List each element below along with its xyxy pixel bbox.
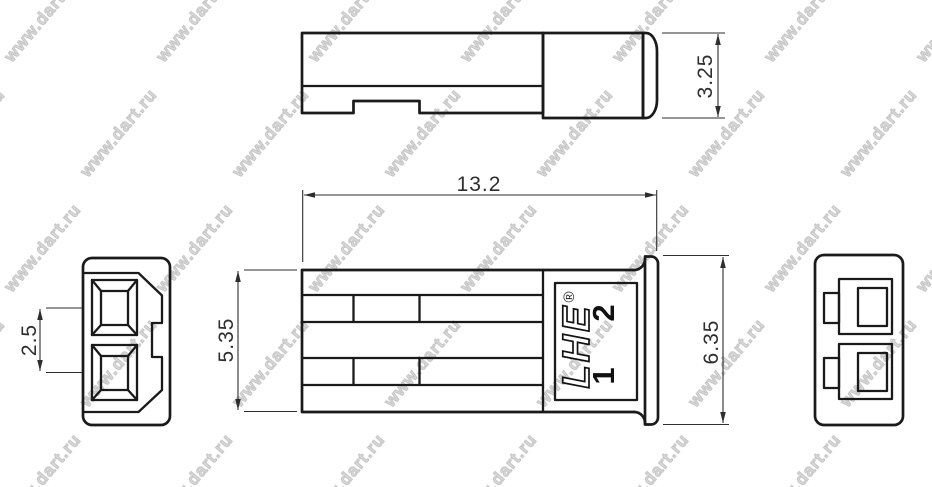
dimension-pin-pitch: 2.5 (18, 308, 82, 373)
front-view-bottom-fillet (634, 412, 645, 423)
right-side-view (815, 255, 903, 425)
right-view-cavity-upper (824, 279, 892, 334)
top-view-flange (643, 33, 657, 118)
dim-label-flange-height: 6.35 (700, 320, 723, 365)
pin-number-2: 2 (586, 304, 621, 321)
dim-label-pin-pitch: 2.5 (18, 324, 41, 356)
front-view: ® LHE 2 1 (302, 257, 658, 425)
registered-trademark-symbol: ® (561, 291, 578, 302)
dimension-flange-height: 6.35 (663, 256, 729, 425)
left-side-view (83, 258, 170, 425)
dimension-overall-length: 13.2 (303, 173, 657, 262)
connector-drawing: 3.25 ® (0, 0, 932, 487)
dim-label-overall-length: 13.2 (457, 173, 502, 196)
top-view (302, 33, 657, 118)
dim-label-body-height: 5.35 (215, 318, 238, 363)
front-view-flange (645, 257, 658, 425)
front-view-stripe-pattern (302, 295, 543, 385)
top-view-front-section (543, 33, 643, 118)
top-view-body-outline (302, 33, 543, 113)
right-view-cavity-lower (824, 344, 892, 399)
technical-drawing-page: www.dart.ruwww.dart.ruwww.dart.ruwww.dar… (0, 0, 932, 487)
dimension-top-view-height: 3.25 (662, 33, 725, 118)
pin-number-1: 1 (586, 367, 621, 384)
dim-label-top-view-height: 3.25 (694, 54, 717, 99)
left-view-cavity-upper (92, 280, 137, 335)
front-view-top-fillet (634, 259, 645, 270)
dimension-body-height: 5.35 (215, 270, 297, 412)
left-view-cavity-lower (92, 345, 137, 400)
